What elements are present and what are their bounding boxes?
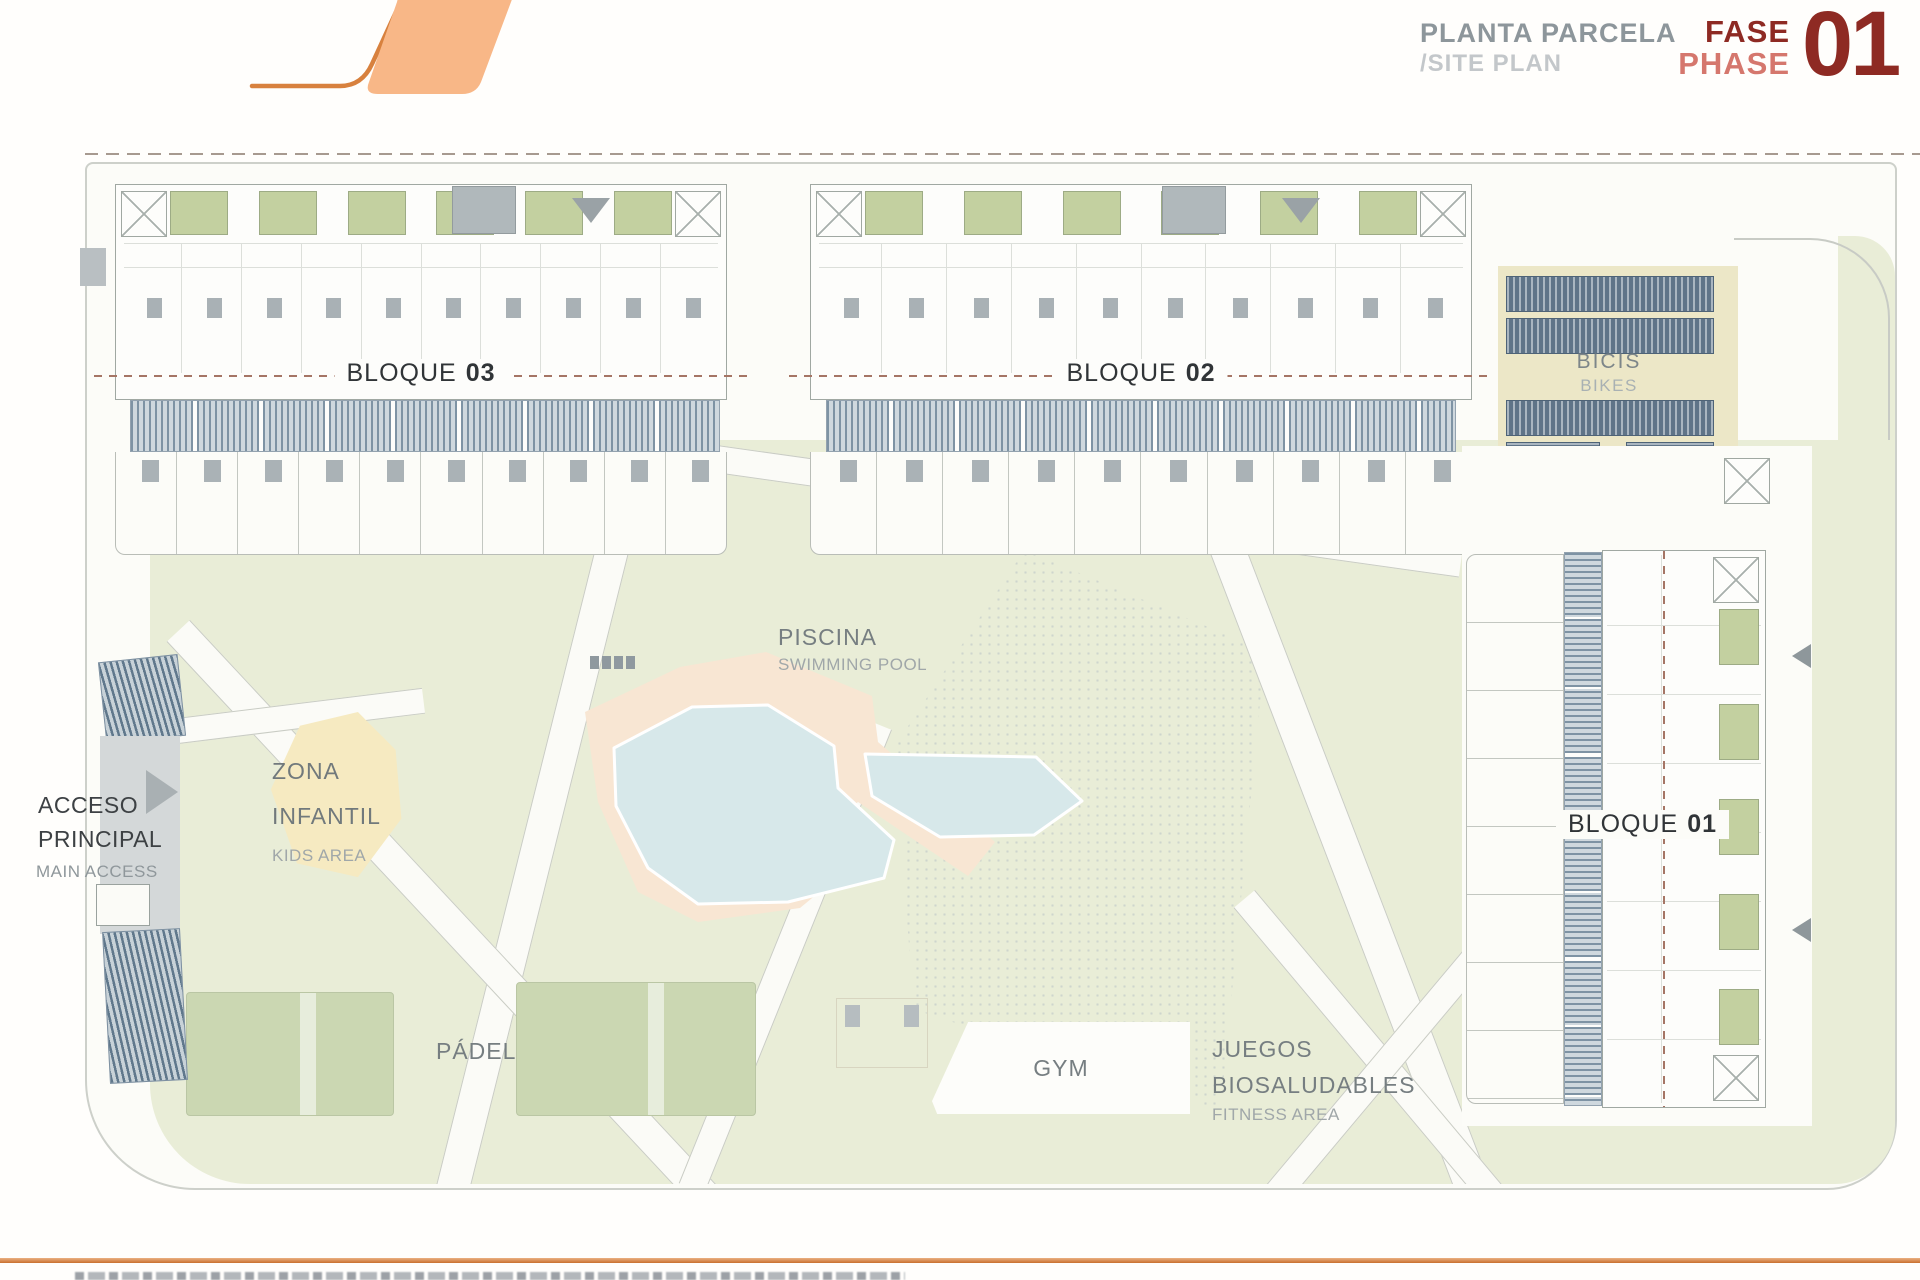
ucell-cell [1336, 243, 1401, 373]
gcell-cell [1141, 452, 1207, 554]
gcell-cell [666, 452, 726, 554]
ucell-cell [122, 243, 182, 373]
gcell-cell [943, 452, 1009, 554]
ucell-cell [947, 243, 1012, 373]
parking-hatch-bottom [102, 928, 188, 1084]
pool-ladder-icon [590, 656, 635, 669]
pool-label-en: SWIMMING POOL [778, 655, 927, 675]
ucell-cell [1012, 243, 1077, 373]
gym-label: GYM [1033, 1055, 1088, 1082]
gym-building: GYM [932, 1022, 1190, 1114]
ucell-cell [817, 243, 882, 373]
stair-core-icon [121, 191, 167, 237]
gcell-cell [1075, 452, 1141, 554]
ucell-cell [661, 243, 720, 373]
ucell-cell [362, 243, 422, 373]
fitness-label-en: FITNESS AREA [1212, 1105, 1415, 1125]
stair-core-icon [1724, 458, 1770, 504]
phase-label-es: FASE [1640, 14, 1790, 50]
gcell-cell [238, 452, 299, 554]
access-curb-box [96, 884, 150, 926]
ucell-cell [1206, 243, 1271, 373]
patio-cell [348, 191, 406, 235]
gcell-cell [1340, 452, 1406, 554]
roof-core-bloque-02 [1162, 186, 1226, 234]
parking-hatch-top [98, 654, 186, 744]
left-edge-utility-block [80, 248, 106, 286]
logo-parallelogram [368, 0, 513, 94]
vpatio-cell [1719, 704, 1759, 760]
patio-cell [964, 191, 1022, 235]
patio-cell [614, 191, 672, 235]
patio-cell [1359, 191, 1417, 235]
patio-cell [865, 191, 923, 235]
ucell-cell [182, 243, 242, 373]
entrance-arrow-bloque-03 [572, 198, 610, 223]
bloque-03-gardens [115, 452, 727, 555]
roof-core-bloque-03 [452, 186, 516, 234]
entrance-arrow-bloque-02 [1282, 198, 1320, 223]
stair-core-icon [1713, 557, 1759, 603]
fitness-label-es-1: JUEGOS [1212, 1036, 1415, 1063]
bikes-label-es: BICIS [1498, 350, 1720, 374]
gcell-cell [116, 452, 177, 554]
vpatio-cell [1719, 609, 1759, 665]
stair-core-icon [1420, 191, 1466, 237]
ucell-cell [882, 243, 947, 373]
bikes-label-en: BIKES [1498, 376, 1720, 396]
gcell-cell [877, 452, 943, 554]
access-label-es-1: ACCESO [38, 792, 138, 819]
site-boundary-dashed-line [85, 153, 1920, 155]
bloque-02-units [817, 243, 1465, 373]
bike-rack-row [1506, 276, 1714, 312]
padel-court-1 [186, 992, 394, 1116]
gcell-cell [1274, 452, 1340, 554]
bloque-03-label: BLOQUE03 [334, 359, 507, 388]
gcell-cell [483, 452, 544, 554]
pool-label-es: PISCINA [778, 624, 927, 651]
entrance-arrow-bloque-01 [1792, 644, 1811, 668]
ucell-cell [481, 243, 541, 373]
bloque-02-pergola-parking [826, 400, 1456, 452]
gcell-cell [299, 452, 360, 554]
kids-label-es-2: INFANTIL [272, 803, 381, 830]
gcell-cell [177, 452, 238, 554]
ucell-cell [1142, 243, 1207, 373]
vpatio-cell [1719, 989, 1759, 1045]
bloque-02-building: BLOQUE02 [810, 184, 1472, 400]
patio-cell [170, 191, 228, 235]
bloque-02-patios [865, 191, 1417, 239]
gcell-cell [421, 452, 482, 554]
entrance-arrow-bloque-01 [1792, 918, 1811, 942]
equipment-mark [904, 1005, 919, 1027]
equipment-mark [845, 1005, 860, 1027]
ucell-cell [422, 243, 482, 373]
stair-core-icon [675, 191, 721, 237]
bloque-01-zone [1462, 446, 1812, 1126]
gcell-cell [605, 452, 666, 554]
page-title: PLANTA PARCELA [1420, 18, 1677, 49]
gcell-cell [811, 452, 877, 554]
access-label-en: MAIN ACCESS [36, 862, 158, 882]
fine-print-cutoff [75, 1272, 905, 1280]
phase-number: 01 [1802, 0, 1898, 90]
ucell-cell [242, 243, 302, 373]
bike-rack-row [1506, 318, 1714, 354]
gcell-cell [544, 452, 605, 554]
top-right-road-curve [1734, 238, 1890, 440]
phase-label-en: PHASE [1640, 46, 1790, 82]
gcell-cell [360, 452, 421, 554]
bloque-03-building: BLOQUE03 [115, 184, 727, 400]
ucell-cell [302, 243, 362, 373]
ucell-cell [601, 243, 661, 373]
fitness-label-group: JUEGOS BIOSALUDABLES FITNESS AREA [1212, 1036, 1415, 1125]
bloque-03-units [122, 243, 720, 373]
fitness-equipment-box [836, 998, 928, 1068]
patio-cell [1063, 191, 1121, 235]
bike-rack-row [1506, 400, 1714, 436]
kids-label-group: ZONA INFANTIL KIDS AREA [272, 758, 381, 866]
brand-logo [248, 0, 533, 100]
bottom-orange-rule [0, 1258, 1920, 1263]
padel-label: PÁDEL [436, 1038, 516, 1065]
page-subtitle: /SITE PLAN [1420, 50, 1562, 78]
stair-core-icon [816, 191, 862, 237]
access-arrow-icon [146, 770, 178, 814]
access-label-es-2: PRINCIPAL [38, 826, 162, 853]
pool-graphic [570, 630, 1130, 950]
pool-label-group: PISCINA SWIMMING POOL [778, 624, 927, 675]
bloque-02-gardens [810, 452, 1472, 555]
kids-label-es-1: ZONA [272, 758, 381, 785]
kids-label-en: KIDS AREA [272, 846, 381, 866]
bloque-01-gardens [1466, 554, 1564, 1104]
padel-court-2 [516, 982, 756, 1116]
ucell-cell [1271, 243, 1336, 373]
ucell-cell [541, 243, 601, 373]
gcell-cell [1208, 452, 1274, 554]
ucell-cell [1077, 243, 1142, 373]
stair-core-icon [1713, 1055, 1759, 1101]
bloque-02-label: BLOQUE02 [1054, 359, 1227, 388]
bloque-01-label: BLOQUE01 [1556, 810, 1729, 839]
site-plan-page: PLANTA PARCELA /SITE PLAN FASE PHASE 01 [0, 0, 1920, 1280]
gcell-cell [1009, 452, 1075, 554]
bloque-03-pergola-parking [130, 400, 720, 452]
patio-cell [259, 191, 317, 235]
vpatio-cell [1719, 894, 1759, 950]
fitness-label-es-2: BIOSALUDABLES [1212, 1072, 1415, 1099]
bikes-label-group: BICIS BIKES [1498, 350, 1720, 396]
ucell-cell [1401, 243, 1465, 373]
